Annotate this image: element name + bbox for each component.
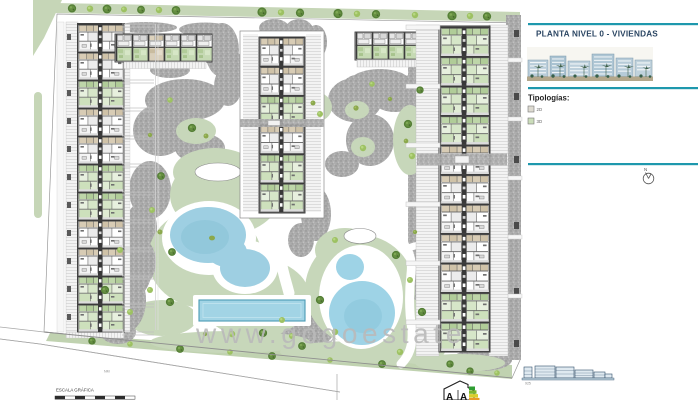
- svg-text:ESCALA GRÁFICA: ESCALA GRÁFICA: [56, 388, 94, 393]
- svg-text:3D: 3D: [537, 119, 543, 124]
- svg-text:www.gogoestate: www.gogoestate: [195, 318, 466, 349]
- svg-text:Tipologías:: Tipologías:: [528, 94, 569, 103]
- svg-text:A: A: [446, 392, 453, 400]
- svg-text:A: A: [460, 392, 467, 400]
- svg-text:N: N: [644, 167, 647, 172]
- svg-text:2D: 2D: [537, 107, 543, 112]
- svg-text:NM: NM: [104, 370, 110, 374]
- svg-text:PLANTA NIVEL 0 - VIVIENDAS: PLANTA NIVEL 0 - VIVIENDAS: [536, 30, 658, 39]
- svg-text:925: 925: [525, 382, 531, 386]
